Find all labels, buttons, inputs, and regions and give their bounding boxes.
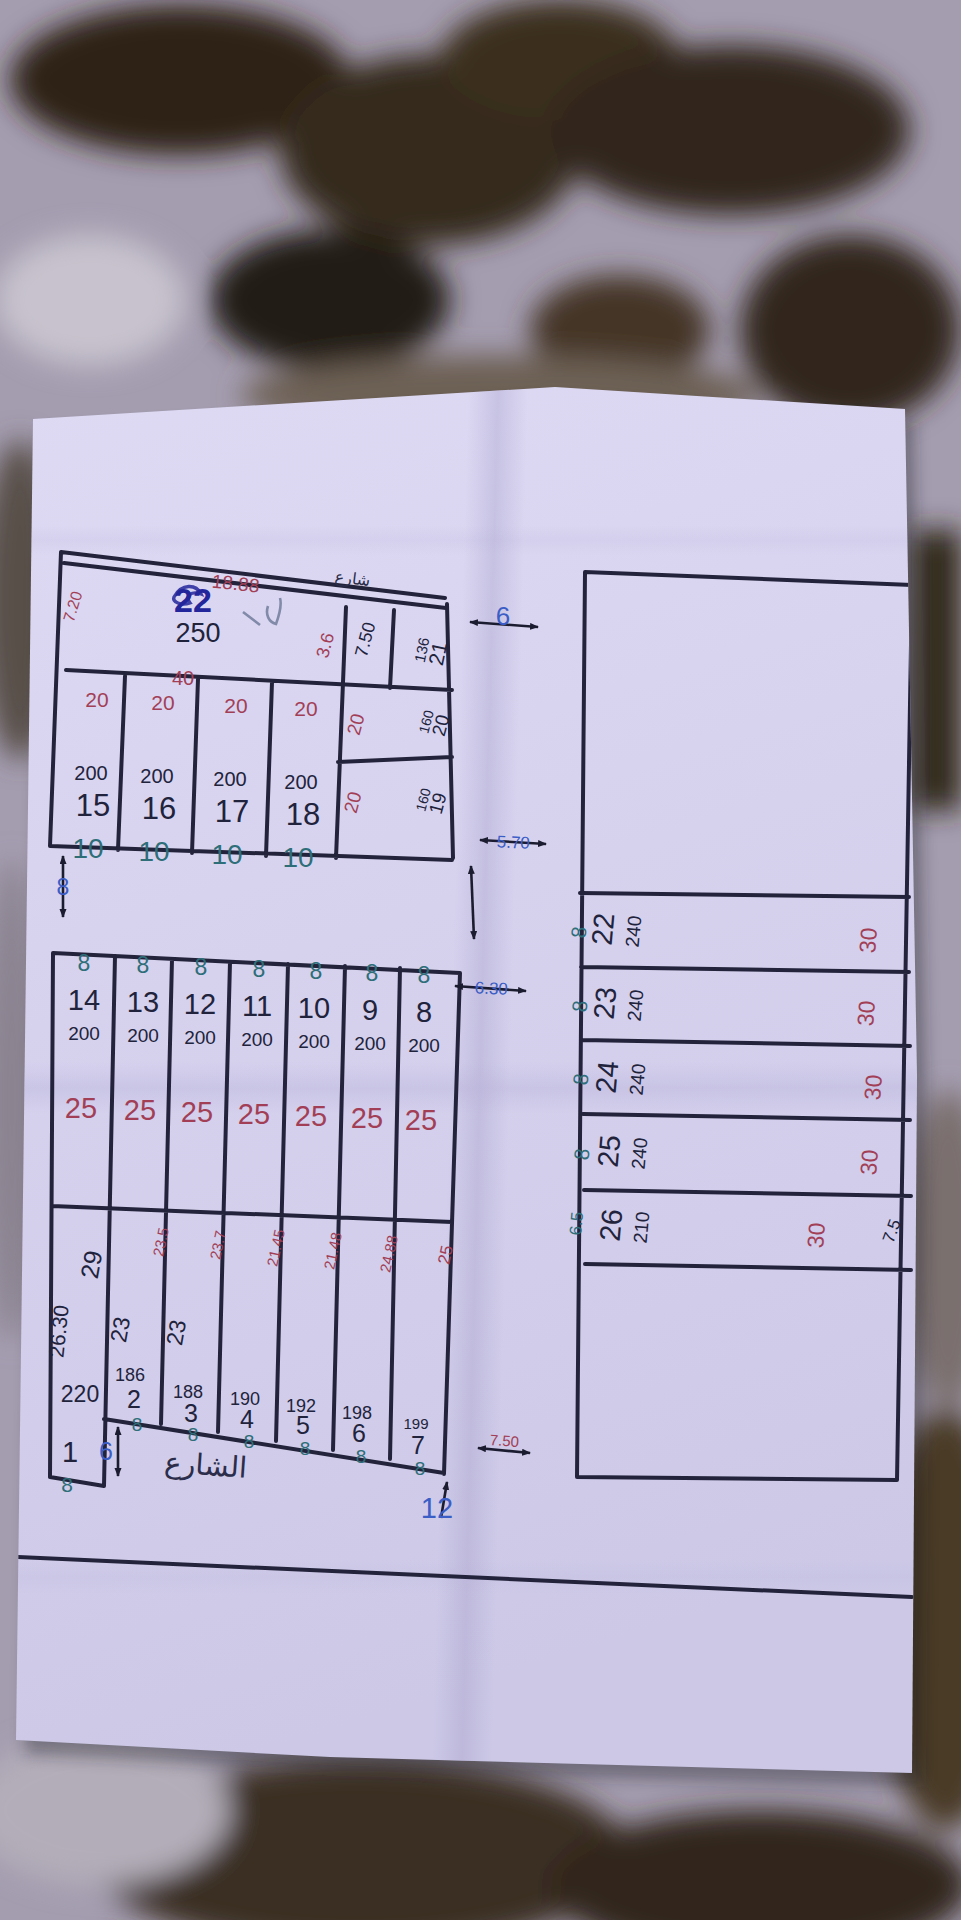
- col8-top-width: 8: [418, 962, 431, 988]
- plot15-bottom-width: 10: [72, 833, 103, 864]
- plot12-number: 12: [184, 988, 216, 1020]
- plot15-width: 20: [85, 688, 108, 711]
- plot9-number: 9: [362, 994, 378, 1026]
- gap-630-label: 6.30: [474, 978, 508, 999]
- plot17-area: 200: [213, 768, 246, 790]
- plot15-area: 200: [74, 762, 107, 784]
- plot4-bottom-width: 8: [244, 1431, 255, 1452]
- plot2-side-dim: 23: [105, 1315, 135, 1345]
- plot4-number: 4: [240, 1405, 254, 1433]
- plot5-bottom-width: 8: [300, 1438, 311, 1459]
- col11-top-width: 8: [253, 956, 266, 982]
- row24-number: 24: [590, 1060, 625, 1095]
- row25-length: 30: [855, 1148, 883, 1176]
- plot6-number: 6: [352, 1419, 366, 1447]
- gap-8-label: 8: [57, 874, 70, 900]
- row26-number: 26: [594, 1208, 629, 1243]
- plot3-number: 3: [184, 1399, 198, 1427]
- street-width-6: 6: [99, 1437, 113, 1465]
- row22-length: 30: [854, 926, 882, 954]
- plot13-length: 25: [124, 1094, 156, 1126]
- row26-length: 30: [802, 1221, 830, 1249]
- plot8-area: 200: [408, 1035, 440, 1056]
- plot15-number: 15: [76, 788, 110, 823]
- plot11-number: 11: [242, 990, 272, 1022]
- plot18-area: 200: [284, 771, 317, 793]
- street-width-750: 7.50: [489, 1431, 519, 1450]
- plot21-number: 21: [424, 640, 451, 668]
- plot11-area: 200: [241, 1029, 273, 1050]
- plot1-top-dim: 29: [75, 1248, 107, 1280]
- row23-length: 30: [852, 999, 880, 1027]
- col14-top-width: 8: [78, 950, 91, 976]
- row22-number: 22: [586, 912, 621, 947]
- plot18-bottom-width: 10: [282, 842, 313, 873]
- row24-width: 8: [569, 1073, 593, 1087]
- plot13-area: 200: [127, 1025, 159, 1046]
- plot6-bottom-width: 8: [356, 1446, 367, 1467]
- plot3-side-dim: 23: [161, 1318, 191, 1348]
- plot7-area: 199: [403, 1415, 428, 1432]
- row24-length: 30: [859, 1073, 887, 1101]
- col13-top-width: 8: [137, 952, 150, 978]
- gap-6-label: 6: [496, 601, 510, 631]
- plot1-area: 220: [61, 1381, 99, 1407]
- row25-width: 8: [570, 1148, 594, 1162]
- plot7-line-dim: 25: [434, 1244, 457, 1266]
- plot5-number: 5: [296, 1411, 310, 1439]
- plot22-area: 250: [175, 618, 220, 648]
- plot12-length: 25: [181, 1096, 213, 1128]
- row22-area: 240: [622, 915, 646, 948]
- plot22-bottom-dim: 40: [172, 667, 194, 689]
- plot9-length: 25: [351, 1102, 383, 1134]
- plot9-area: 200: [354, 1033, 386, 1054]
- plot10-number: 10: [298, 992, 330, 1024]
- row26-area: 210: [630, 1211, 654, 1244]
- plot7-bottom-width: 8: [415, 1458, 426, 1479]
- row25-area: 240: [628, 1137, 652, 1170]
- plot16-bottom-width: 10: [138, 836, 169, 867]
- plot8-length: 25: [405, 1104, 437, 1136]
- plot17-bottom-width: 10: [211, 839, 242, 870]
- col12-top-width: 8: [195, 954, 208, 980]
- plot10-length: 25: [295, 1100, 327, 1132]
- plot22-number: 22: [174, 581, 212, 619]
- plot11-length: 25: [238, 1098, 270, 1130]
- plot17-number: 17: [215, 794, 249, 829]
- plot14-number: 14: [68, 984, 100, 1016]
- col10-top-width: 8: [310, 958, 323, 984]
- row24-area: 240: [626, 1063, 650, 1096]
- plot16-number: 16: [142, 791, 176, 826]
- plot3-bottom-width: 8: [188, 1424, 199, 1445]
- plot16-area: 200: [140, 765, 173, 787]
- gap-570-label: 5.70: [496, 832, 530, 853]
- plot16-width: 20: [151, 691, 174, 714]
- plot14-length: 25: [65, 1092, 97, 1124]
- row26-width: 6.5: [566, 1211, 587, 1236]
- plot10-area: 200: [298, 1031, 330, 1052]
- plot18-width: 20: [294, 697, 317, 720]
- plot8-number: 8: [416, 996, 432, 1028]
- plot17-width: 20: [224, 694, 247, 717]
- plot14-area: 200: [68, 1023, 100, 1044]
- land-plan-photo: 18.88 شارع 7.20 22 250 40 3.6 7.50 136 2…: [0, 0, 961, 1920]
- plot1-number: 1: [62, 1436, 78, 1468]
- plot2-number: 2: [127, 1385, 141, 1413]
- col9-top-width: 8: [366, 960, 379, 986]
- street-width-12: 12: [421, 1492, 453, 1524]
- plot7-number: 7: [411, 1431, 425, 1459]
- plot12-area: 200: [184, 1027, 216, 1048]
- row25-number: 25: [592, 1134, 627, 1169]
- row23-number: 23: [588, 986, 623, 1021]
- plot13-number: 13: [127, 986, 159, 1018]
- plot1-bottom-width: 8: [61, 1473, 73, 1496]
- plot2-bottom-width: 8: [132, 1414, 143, 1435]
- row23-area: 240: [624, 989, 648, 1022]
- plot18-number: 18: [286, 797, 320, 832]
- plot2-area: 186: [115, 1365, 145, 1385]
